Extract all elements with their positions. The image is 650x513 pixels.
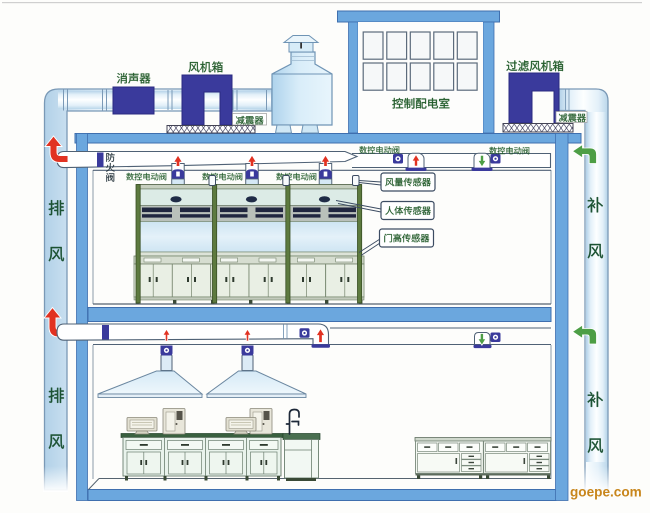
svg-text:goepe.com: goepe.com [570, 485, 642, 500]
